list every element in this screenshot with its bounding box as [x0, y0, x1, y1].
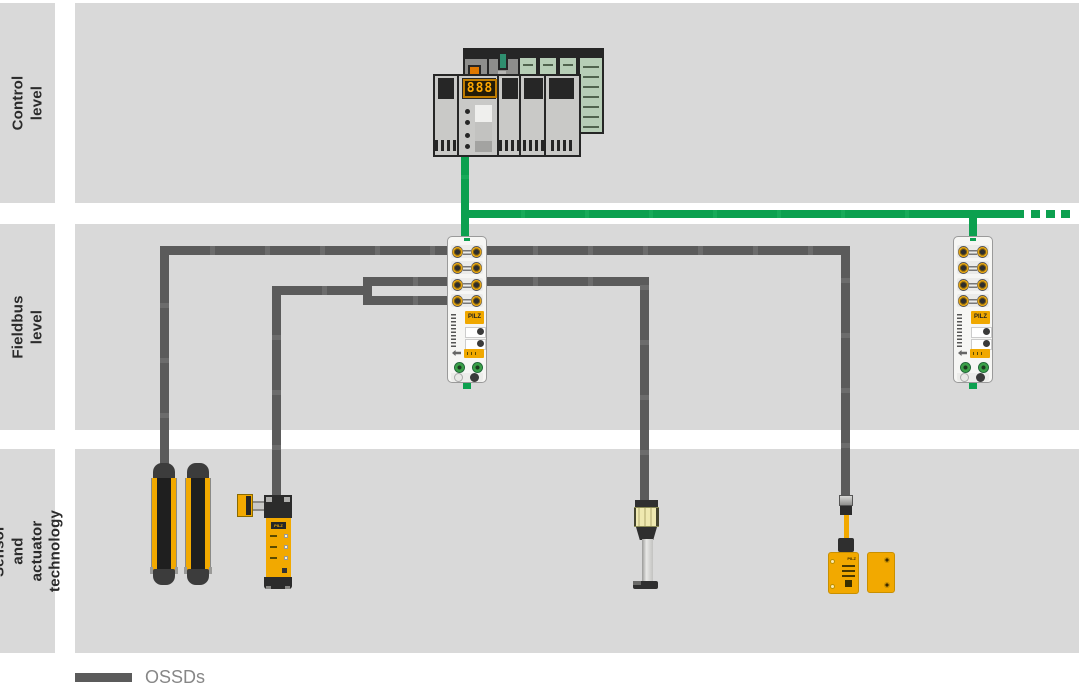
plc-front-rack: 888 [433, 74, 581, 157]
sensor-column-pole [642, 539, 653, 582]
sensor-column-base [633, 581, 658, 589]
pilz-logo: PILZ [971, 311, 990, 324]
io-port-row [957, 294, 989, 307]
module-body: PILZ [447, 236, 487, 383]
mounting-hole [830, 584, 835, 589]
plc-module [519, 76, 546, 155]
ossd-cable-magswitch-vertical [841, 246, 850, 498]
plc-button [465, 144, 470, 149]
bus-connector-icon [472, 362, 483, 373]
m12-port-icon [452, 246, 463, 258]
m12-port-icon [958, 279, 969, 291]
status-led [284, 556, 288, 560]
fieldbus-trunk-line [461, 210, 1024, 218]
ossd-cable-fork-upper-branch [363, 277, 452, 286]
io-port-row [451, 245, 483, 258]
m12-port-icon [977, 279, 988, 291]
sidebar-fieldbus-level: Fieldbus level [0, 224, 55, 430]
rotary-selector [477, 340, 484, 347]
sensor-connector-block [838, 538, 854, 552]
bus-connector-icon [960, 362, 971, 373]
vent-slots [523, 140, 545, 151]
arrow-mark-icon [452, 350, 461, 356]
fieldbus-io-module-left: PILZ [447, 236, 487, 383]
plc-io-card [578, 48, 604, 134]
m12-port-icon [471, 246, 482, 258]
plc-module [435, 76, 457, 155]
module-foot [451, 373, 483, 382]
fieldbus-drop-right-module [969, 210, 977, 239]
plc-module [497, 76, 521, 155]
m12-port-icon [977, 246, 988, 258]
io-port-row [451, 278, 483, 291]
magnetic-safety-switch-actuator [867, 552, 895, 593]
io-port-row [451, 294, 483, 307]
m12-port-icon [958, 262, 969, 274]
io-port-row [451, 261, 483, 274]
screw-icon [884, 582, 890, 588]
cable-connector [839, 495, 853, 506]
sidebar-sensor-level: Sensor and actuator technology [0, 449, 55, 653]
io-port-row [957, 245, 989, 258]
connector-mark [282, 568, 287, 573]
sensor-column-head [634, 507, 659, 527]
fieldbus-continuation-dash [1031, 210, 1040, 218]
m12-port-icon [958, 246, 969, 258]
ossd-cable-gateswitch-vertical [272, 286, 281, 500]
pilz-logo: PILZ [847, 556, 856, 561]
magnetic-safety-switch-sensor: PILZ [828, 552, 859, 594]
sensor-column-cap [635, 500, 658, 507]
m12-port-icon [471, 295, 482, 307]
control-level-label: Control level [9, 76, 47, 131]
plc-module [544, 76, 577, 155]
screw-icon [884, 557, 890, 563]
m12-port-icon [452, 295, 463, 307]
barcode-label [451, 313, 456, 347]
code-mark [845, 580, 852, 587]
cable-connector [840, 506, 852, 515]
vent-slots [435, 140, 457, 151]
vent-slots [551, 140, 573, 151]
fieldbus-continuation-dash [1061, 210, 1070, 218]
module-foot [957, 373, 989, 382]
m12-port-icon [471, 262, 482, 274]
plc-teal-indicator [498, 52, 508, 70]
fieldbus-io-module-right: PILZ [953, 236, 993, 383]
gate-switch-head [264, 495, 292, 518]
m12-port-icon [452, 279, 463, 291]
plc-button [465, 120, 470, 125]
arrow-mark-icon [958, 350, 967, 356]
fieldbus-continuation-dash [1046, 210, 1055, 218]
ossd-legend-swatch [75, 673, 132, 682]
ossd-cable-lightcurtain-horizontal [160, 246, 452, 255]
sidebar-control-level: Control level [0, 3, 55, 203]
bus-connector-icon [978, 362, 989, 373]
module-body: PILZ [953, 236, 993, 383]
bus-connector-icon [454, 362, 465, 373]
gate-switch-actuator [237, 494, 253, 517]
type-label [970, 349, 990, 358]
ossd-cable-fork-lower-branch [363, 296, 452, 305]
mounting-hole [830, 559, 835, 564]
vent-slots [499, 140, 521, 151]
plc-button [465, 133, 470, 138]
m12-port-icon [452, 262, 463, 274]
io-port-row [957, 278, 989, 291]
gate-switch-base [264, 577, 292, 589]
m12-port-icon [977, 262, 988, 274]
rotary-selector [477, 328, 484, 335]
ossd-cable-magswitch-horizontal [483, 246, 850, 255]
m12-port-icon [977, 295, 988, 307]
barcode-label [957, 313, 962, 347]
rotary-selector [983, 328, 990, 335]
sensor-wire [844, 515, 849, 538]
sensor-level-area [75, 449, 1079, 653]
sensor-level-label: Sensor and actuator technology [0, 510, 65, 592]
type-label [464, 349, 484, 358]
seven-segment-display: 888 [463, 79, 497, 98]
status-led [284, 534, 288, 538]
pilz-logo: PILZ [465, 311, 484, 324]
plc-button [465, 109, 470, 114]
status-led [284, 545, 288, 549]
ossd-cable-lightcurtain-vertical [160, 246, 169, 468]
rotary-selector [983, 340, 990, 347]
pilz-logo: PILZ [271, 522, 286, 529]
m12-port-icon [471, 279, 482, 291]
m12-port-icon [958, 295, 969, 307]
fieldbus-drop-plc [461, 151, 469, 239]
architecture-diagram: Control level Fieldbus level Sensor and … [0, 0, 1079, 691]
ossd-cable-gateswitch-horizontal [272, 286, 372, 295]
safety-light-curtain-transmitter [151, 463, 177, 585]
ossd-cable-scanner-horizontal [483, 277, 649, 286]
fieldbus-level-label: Fieldbus level [9, 295, 47, 358]
ossd-cable-scanner-vertical [640, 277, 649, 505]
safety-light-curtain-receiver [185, 463, 211, 585]
plc-cpu-module: 888 [457, 76, 499, 155]
ossd-legend-label: OSSDs [145, 665, 205, 689]
plc-mode-slider [475, 105, 492, 152]
safety-gate-switch-body: PILZ [266, 518, 291, 578]
io-port-row [957, 261, 989, 274]
